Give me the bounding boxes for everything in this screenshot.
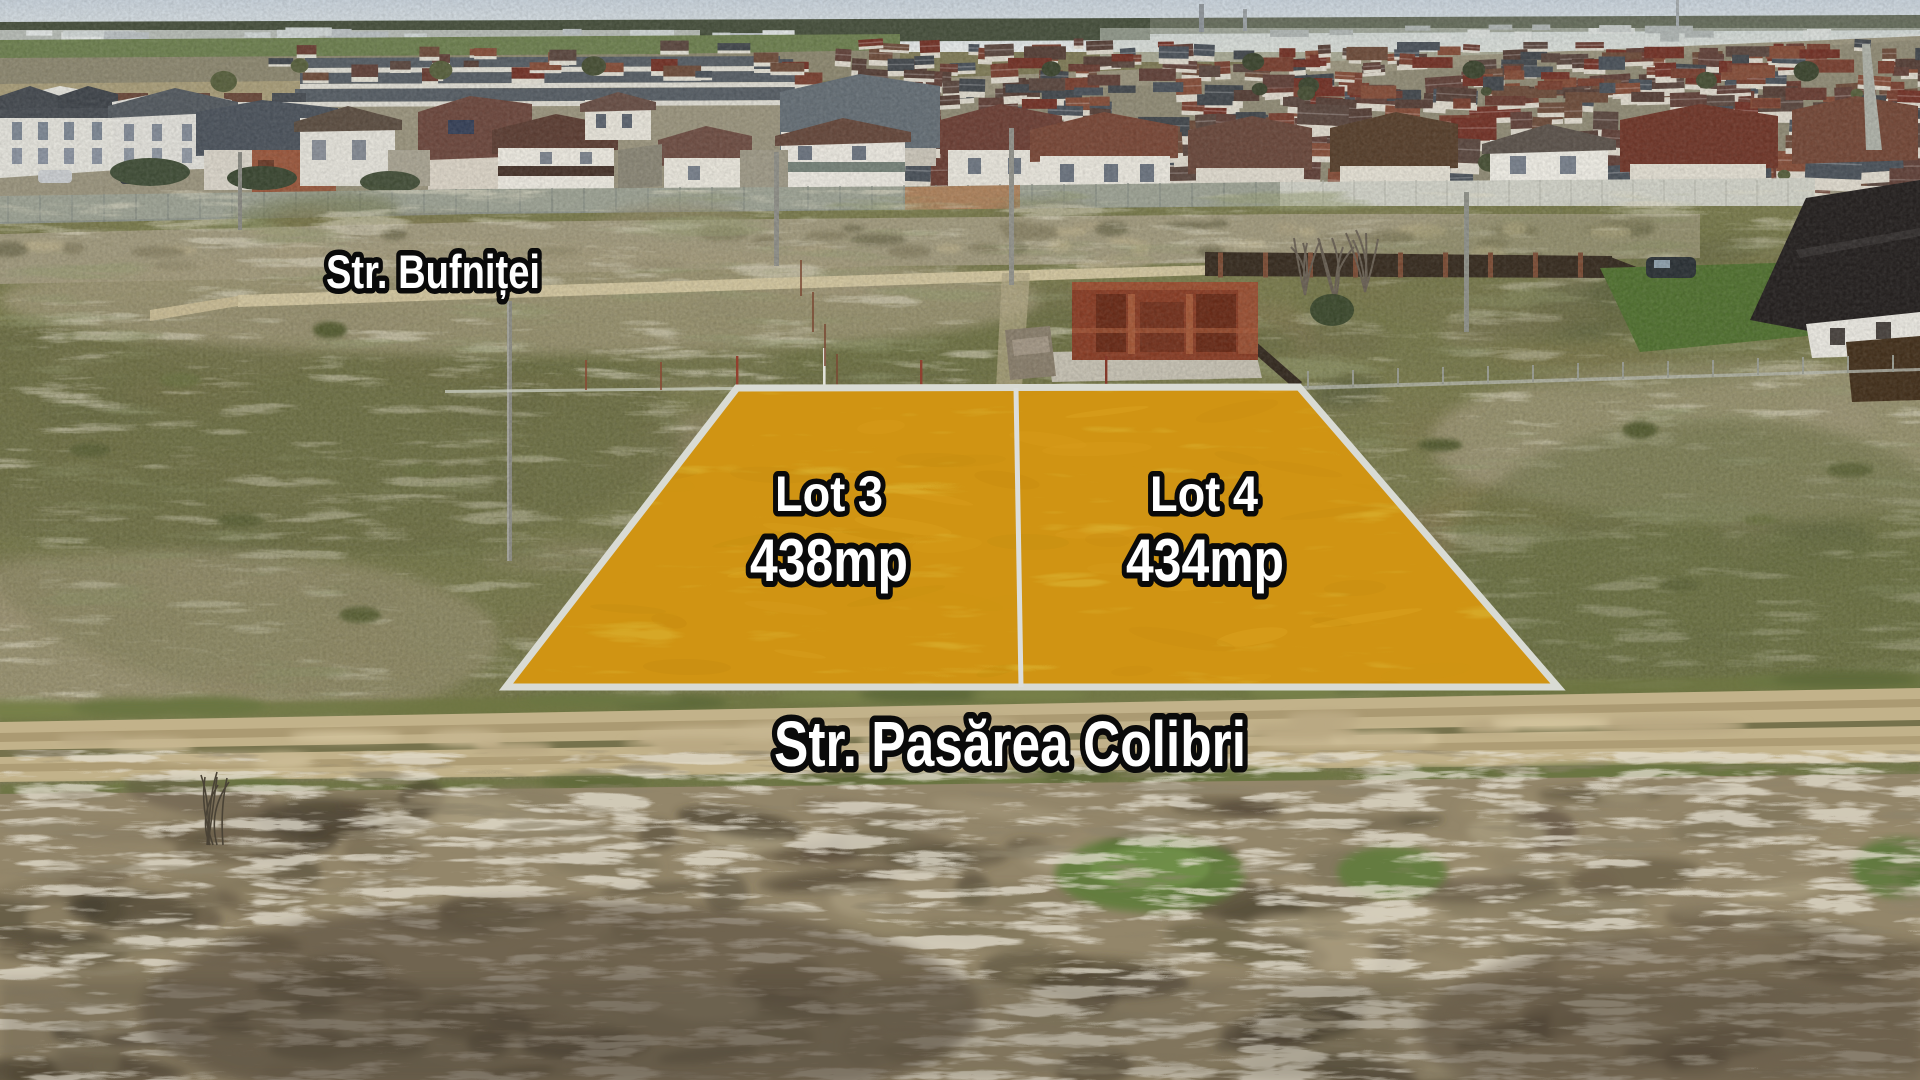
svg-text:Lot 3: Lot 3 xyxy=(775,466,883,522)
svg-text:Lot 4: Lot 4 xyxy=(1150,466,1258,522)
svg-text:Str. Pasărea Colibri: Str. Pasărea Colibri xyxy=(774,708,1246,780)
svg-text:Str. Bufniței: Str. Bufniței xyxy=(326,245,540,299)
svg-text:438mp: 438mp xyxy=(750,527,908,594)
svg-text:434mp: 434mp xyxy=(1126,527,1284,594)
